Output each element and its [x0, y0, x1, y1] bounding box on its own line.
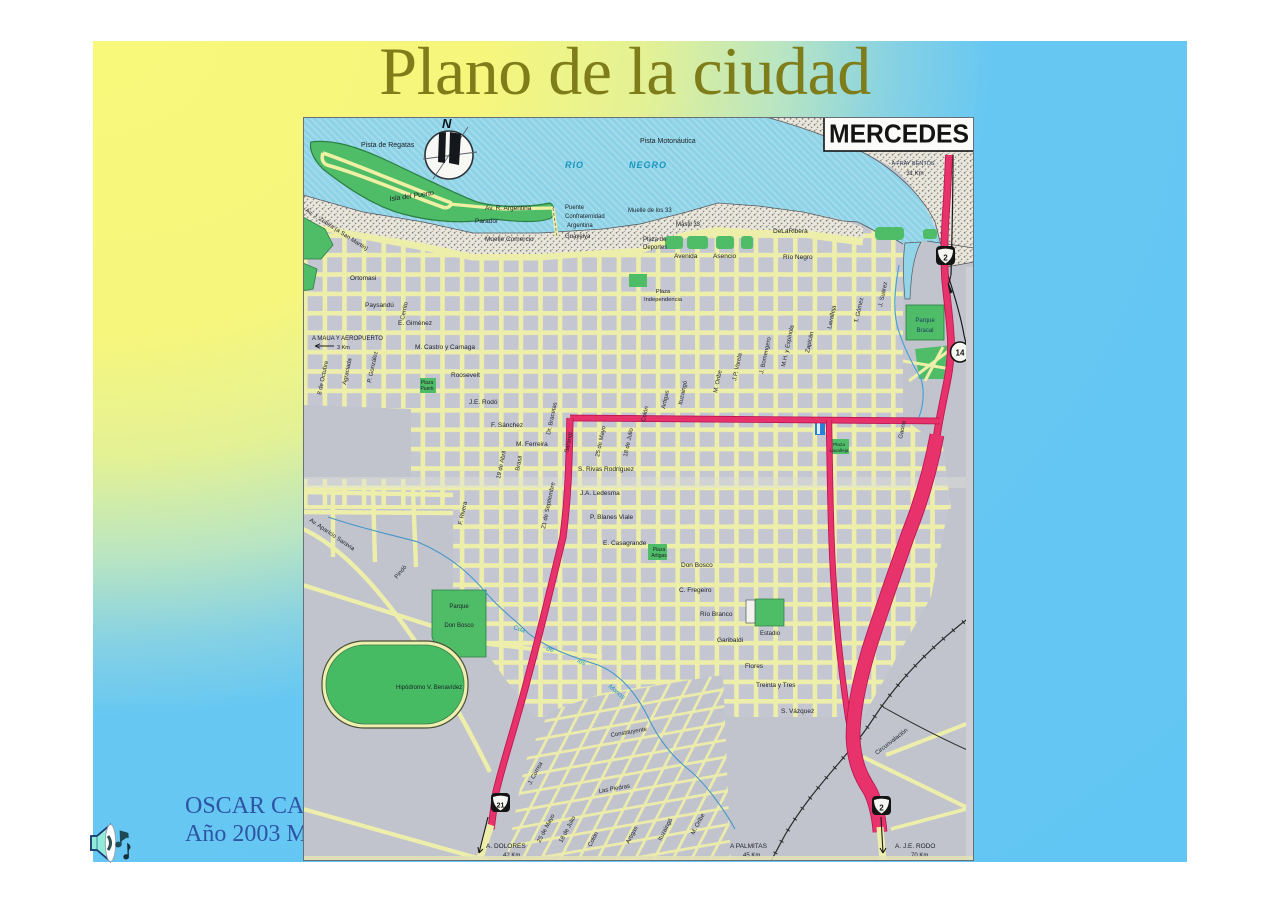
svg-text:A. J.E. RODO: A. J.E. RODO: [895, 843, 935, 850]
svg-text:Independencia: Independencia: [644, 297, 683, 303]
svg-text:Plaza de: Plaza de: [643, 237, 667, 243]
svg-text:F. Sánchez: F. Sánchez: [491, 422, 523, 429]
svg-text:Avenida: Avenida: [674, 253, 698, 260]
svg-text:Garibaldi: Garibaldi: [717, 637, 743, 644]
svg-text:2: 2: [879, 804, 884, 813]
svg-text:Parque: Parque: [449, 604, 469, 610]
svg-text:Paysandú: Paysandú: [365, 302, 394, 309]
svg-text:Plaza: Plaza: [656, 289, 671, 295]
svg-text:21: 21: [497, 803, 505, 810]
svg-text:Mástil 33: Mástil 33: [676, 222, 701, 228]
svg-text:E. Giménez: E. Giménez: [398, 320, 432, 327]
svg-text:A. DOLORES: A. DOLORES: [486, 843, 526, 850]
svg-text:M. Ferreira: M. Ferreira: [516, 441, 548, 448]
svg-text:Artigas: Artigas: [651, 553, 667, 559]
svg-text:P. Blanes Viale: P. Blanes Viale: [590, 514, 634, 521]
svg-text:S. Rivas Rodríguez: S. Rivas Rodríguez: [578, 466, 634, 473]
svg-text:Río Branco: Río Branco: [700, 611, 733, 618]
svg-text:Guayeiya: Guayeiya: [565, 234, 591, 240]
svg-text:Av. R. Argentina: Av. R. Argentina: [485, 205, 532, 212]
svg-text:A MAUA Y AEROPUERTO: A MAUA Y AEROPUERTO: [312, 336, 383, 342]
svg-text:Asencio: Asencio: [713, 253, 737, 260]
svg-text:3 Km: 3 Km: [337, 345, 350, 351]
svg-text:Don Bosco: Don Bosco: [444, 623, 474, 629]
svg-text:Deportes: Deportes: [643, 245, 667, 251]
svg-text:MERCEDES: MERCEDES: [829, 121, 969, 149]
svg-text:Puerti: Puerti: [420, 386, 433, 392]
svg-text:M. Castro y Carnaga: M. Castro y Carnaga: [415, 344, 475, 351]
svg-text:Hipódromo V. Benavídez: Hipódromo V. Benavídez: [396, 685, 462, 691]
svg-text:NEGRO: NEGRO: [629, 160, 667, 170]
svg-text:Confraternidad: Confraternidad: [565, 214, 605, 220]
svg-text:A FRAY BENTOS: A FRAY BENTOS: [891, 161, 934, 167]
svg-text:Parque: Parque: [915, 318, 935, 324]
svg-text:RIO: RIO: [565, 160, 584, 170]
svg-text:Estadio: Estadio: [760, 631, 781, 637]
svg-text:Argentina: Argentina: [567, 223, 593, 229]
svg-text:A PALMITAS: A PALMITAS: [730, 843, 768, 850]
svg-text:Flores: Flores: [745, 663, 764, 670]
svg-text:Plaza: Plaza: [833, 442, 845, 448]
svg-text:Roosevelt: Roosevelt: [451, 372, 480, 379]
svg-text:14: 14: [956, 349, 965, 358]
svg-text:Río Negro: Río Negro: [783, 254, 813, 261]
svg-text:2: 2: [943, 254, 948, 263]
svg-text:N: N: [442, 117, 452, 131]
svg-text:E. Casagrande: E. Casagrande: [603, 540, 647, 547]
svg-text:C. Fregeiro: C. Fregeiro: [679, 587, 712, 594]
svg-text:Bracal: Bracal: [916, 328, 933, 334]
svg-text:Lavalleja: Lavalleja: [830, 448, 849, 454]
svg-text:Muelle de los 33: Muelle de los 33: [628, 208, 672, 214]
svg-text:J.A. Ledesma: J.A. Ledesma: [580, 490, 620, 497]
svg-text:Ortomasi: Ortomasi: [350, 275, 376, 282]
svg-text:Treinta y Tres: Treinta y Tres: [756, 682, 796, 689]
svg-text:Pista Motonáutica: Pista Motonáutica: [640, 138, 696, 145]
svg-text:Pista de Regatas: Pista de Regatas: [361, 142, 415, 149]
svg-text:Puente: Puente: [565, 205, 585, 211]
svg-text:Muelle Comercio: Muelle Comercio: [485, 236, 534, 243]
svg-text:J.E. Rodó: J.E. Rodó: [469, 399, 498, 406]
svg-text:31 Km: 31 Km: [906, 171, 923, 177]
svg-text:Don Bosco: Don Bosco: [681, 562, 713, 569]
svg-text:DeLaRibera: DeLaRibera: [773, 228, 808, 235]
svg-text:Parador: Parador: [475, 218, 499, 225]
svg-text:S. Vázquez: S. Vázquez: [781, 708, 814, 715]
